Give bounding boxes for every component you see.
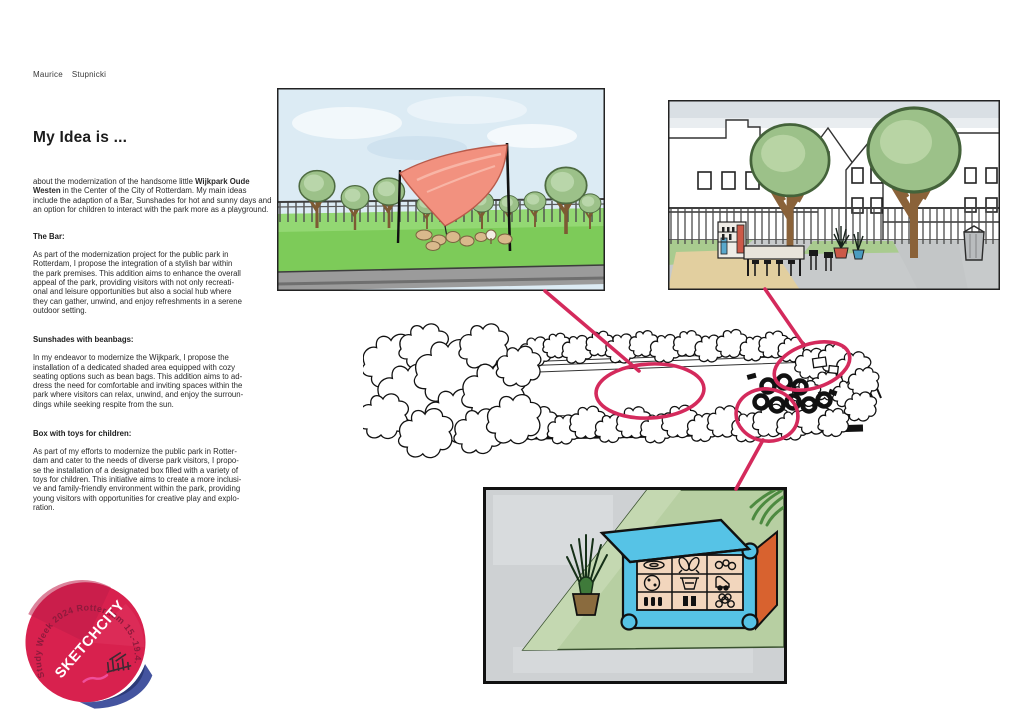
text-column: MauriceStupnicki My Idea is ... about th… — [33, 70, 273, 512]
author-name: MauriceStupnicki — [33, 70, 273, 79]
intro-rest: in the Center of the City of Rotterdam. … — [33, 186, 271, 214]
section-heading-toybox: Box with toys for children: — [33, 429, 273, 438]
section-body-toybox: As part of my efforts to modernize the p… — [33, 447, 273, 512]
street-bar-sketch — [668, 100, 1000, 290]
section-heading-bar: The Bar: — [33, 232, 273, 241]
author-last-name: Stupnicki — [72, 70, 106, 79]
intro-lead: about the modernization of the handsome … — [33, 177, 195, 186]
page-title: My Idea is ... — [33, 129, 273, 147]
section-heading-sunshades: Sunshades with beanbags: — [33, 335, 273, 344]
park-plan-sketch — [363, 302, 883, 467]
section-body-sunshades: In my endeavor to modernize the Wijkpark… — [33, 353, 273, 409]
intro-paragraph: about the modernization of the handsome … — [33, 177, 273, 214]
sunshade-park-sketch — [277, 88, 605, 291]
section-body-bar: As part of the modernization project for… — [33, 250, 273, 315]
toy-box-sketch — [483, 487, 787, 684]
sketchcity-sticker: Study Week 2024 Rotterdam 15.-19.4.2024 … — [15, 571, 161, 722]
poster-page: MauriceStupnicki My Idea is ... about th… — [0, 0, 1024, 724]
author-first-name: Maurice — [33, 70, 63, 79]
